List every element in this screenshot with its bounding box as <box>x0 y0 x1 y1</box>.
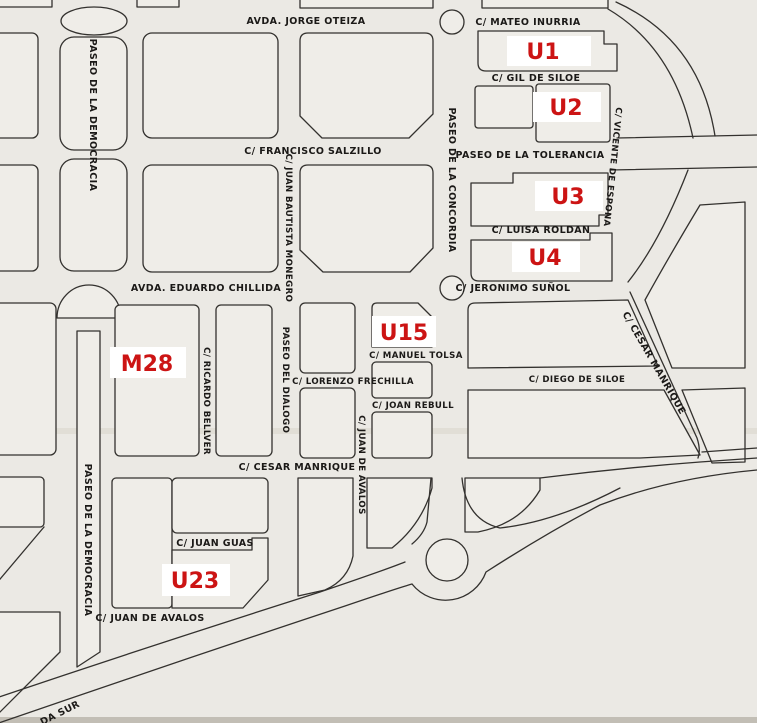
street-label-ricardo-bellver: C/ RICARDO BELLVER <box>201 347 211 455</box>
block <box>137 0 179 7</box>
street-label-lorenzo-frechilla: C/ LORENZO FRECHILLA <box>292 377 414 387</box>
roundabout <box>440 10 464 34</box>
block <box>0 303 56 455</box>
block <box>0 477 44 527</box>
block <box>0 0 52 7</box>
street-label-avda-jorge-oteiza: AVDA. JORGE OTEIZA <box>247 16 366 27</box>
zone-label-text: M28 <box>121 352 174 377</box>
street-label-juan-de-avalos-h: C/ JUAN DE AVALOS <box>95 613 204 624</box>
roundabout <box>426 539 468 581</box>
street-label-avda-eduardo-chillida: AVDA. EDUARDO CHILLIDA <box>131 283 282 294</box>
block <box>216 305 272 456</box>
street-label-luisa-roldan: C/ LUISA ROLDAN <box>492 225 591 236</box>
street-label-manuel-tolsa: C/ MANUEL TOLSA <box>369 351 463 361</box>
block <box>300 0 433 8</box>
block <box>372 412 432 458</box>
zone-label-text: U3 <box>551 185 584 210</box>
block <box>300 165 433 272</box>
street-label-mateo-inurria: C/ MATEO INURRIA <box>475 17 581 28</box>
street-label-paseo-democracia-north: PASEO DE LA DEMOCRACIA <box>87 39 98 192</box>
block <box>0 165 38 271</box>
street-label-juan-guas: C/ JUAN GUAS <box>176 538 254 549</box>
zone-label-text: U15 <box>380 321 428 346</box>
block <box>172 478 268 533</box>
zone-label-text: U1 <box>526 40 559 65</box>
zone-label-text: U2 <box>549 96 582 121</box>
street-label-jeronimo-sunol: C/ JERONIMO SUÑOL <box>456 283 571 294</box>
block <box>482 0 608 8</box>
block-m28 <box>115 305 199 456</box>
street-label-paseo-concordia: PASEO DE LA CONCORDIA <box>446 107 457 252</box>
block <box>0 33 38 138</box>
zone-label-text: U4 <box>528 246 561 271</box>
zone-label-u3: U3 <box>535 181 603 211</box>
block <box>300 33 433 138</box>
street-label-juan-de-avalos-v: C/ JUAN DE AVALOS <box>356 415 366 514</box>
map-canvas: AVDA. JORGE OTEIZA C/ MATEO INURRIA C/ G… <box>0 0 757 723</box>
street-label-paseo-democracia-south: PASEO DE LA DEMOCRACIA <box>82 464 93 617</box>
street-label-paseo-tolerancia: PASEO DE LA TOLERANCIA <box>456 150 605 161</box>
block <box>143 33 278 138</box>
block <box>475 86 533 128</box>
zone-label-u15: U15 <box>372 316 436 347</box>
street-map: AVDA. JORGE OTEIZA C/ MATEO INURRIA C/ G… <box>0 0 757 723</box>
zone-label-u1: U1 <box>507 36 591 66</box>
street-label-juan-bautista-monegro: C/ JUAN BAUTISTA MONEGRO <box>283 154 293 303</box>
zone-label-text: U23 <box>171 569 219 594</box>
street-label-francisco-salzillo: C/ FRANCISCO SALZILLO <box>244 146 381 157</box>
zone-label-m28: M28 <box>110 347 186 378</box>
street-label-paseo-del-dialogo: PASEO DEL DIALOGO <box>280 327 290 434</box>
zone-label-u2: U2 <box>533 92 601 122</box>
block <box>143 165 278 272</box>
boulevard-median <box>61 7 127 35</box>
street-label-joan-rebull: C/ JOAN REBULL <box>372 401 454 411</box>
scan-edge <box>0 717 757 723</box>
street-label-cesar-manrique-h: C/ CESAR MANRIQUE <box>239 462 356 473</box>
block <box>468 390 700 458</box>
street-label-gil-de-siloe: C/ GIL DE SILOE <box>492 73 581 84</box>
block <box>300 303 355 373</box>
street-label-diego-de-siloe: C/ DIEGO DE SILOE <box>529 375 626 385</box>
zone-label-u23: U23 <box>162 564 230 596</box>
block <box>300 388 355 458</box>
zone-label-u4: U4 <box>512 242 580 272</box>
